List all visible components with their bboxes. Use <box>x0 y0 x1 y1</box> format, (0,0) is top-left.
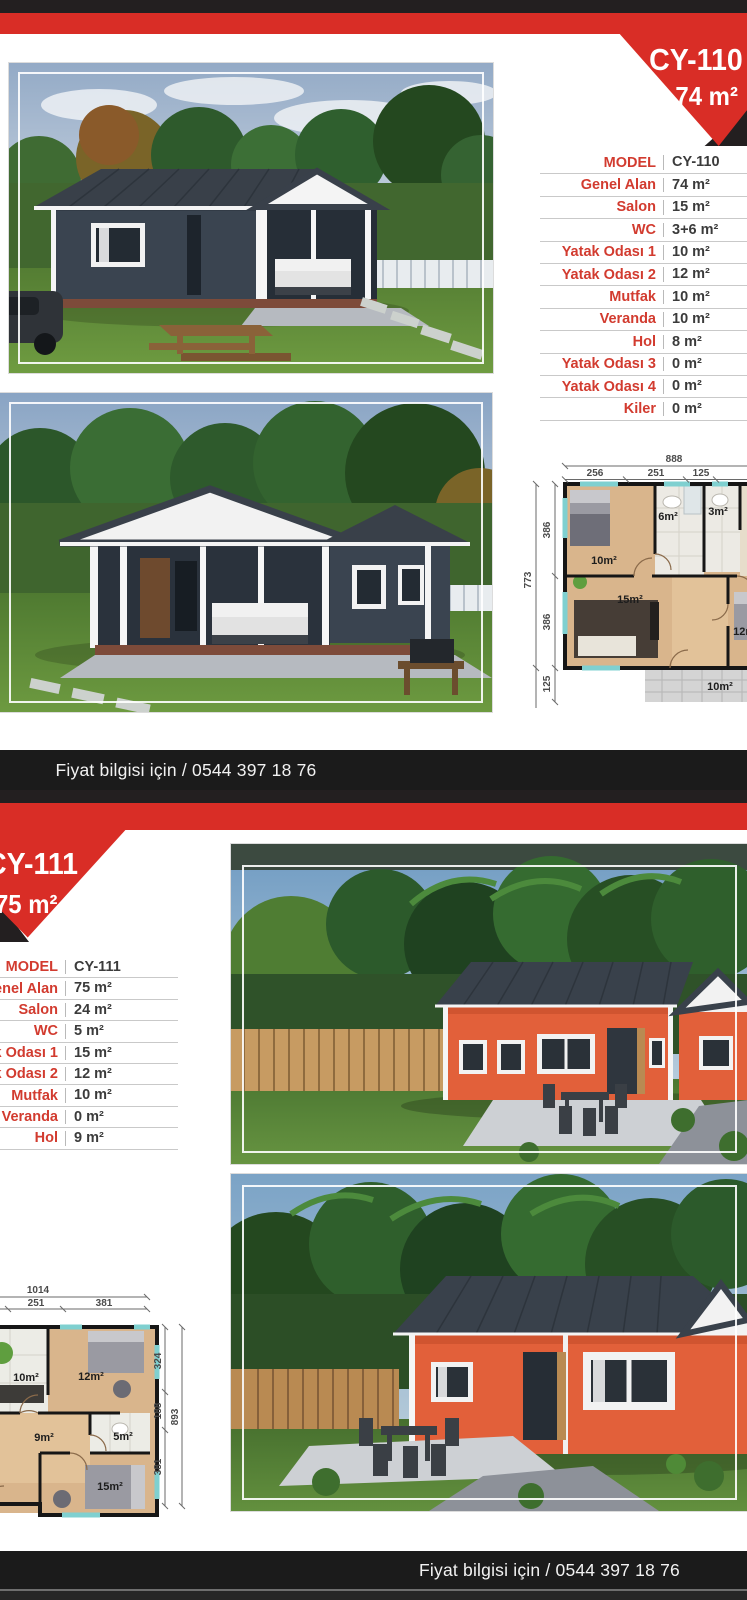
spec-value: 24 m² <box>65 1003 178 1018</box>
section1-red-band <box>0 13 747 34</box>
spec-label: Veranda <box>0 1107 65 1127</box>
svg-text:1014: 1014 <box>27 1285 50 1296</box>
spec-label: WC <box>540 219 663 240</box>
spec-row: Yatak Odası 40 m² <box>540 376 747 398</box>
downspout <box>187 215 201 295</box>
top-dark-strip <box>0 0 747 13</box>
svg-text:381: 381 <box>153 1458 164 1475</box>
spec-label: Yatak Odası 1 <box>540 242 663 263</box>
spec-value: CY-110 <box>663 155 747 170</box>
door <box>523 1352 566 1440</box>
wood-fence <box>231 1029 446 1091</box>
spec-label: Veranda <box>540 309 663 330</box>
spec-value: 0 m² <box>663 402 747 417</box>
spec-row: Hol9 m² <box>0 1128 178 1149</box>
spec-row: MODELCY-111 <box>0 957 178 978</box>
svg-text:12m²: 12m² <box>78 1371 104 1383</box>
spec-label: MODEL <box>540 152 663 173</box>
svg-text:188: 188 <box>153 1402 164 1419</box>
model-code: CY-110 <box>649 42 743 78</box>
svg-text:9m²: 9m² <box>34 1432 54 1444</box>
spec-row: Veranda10 m² <box>540 309 747 331</box>
spec-label: Hol <box>0 1128 65 1148</box>
svg-text:386: 386 <box>542 613 553 630</box>
spec-label: Mutfak <box>0 1085 65 1105</box>
svg-text:5m²: 5m² <box>113 1431 133 1443</box>
svg-text:6m²: 6m² <box>658 511 678 523</box>
price-info-text: Fiyat bilgisi için / 0544 397 18 76 <box>352 1551 747 1589</box>
brick-base <box>51 299 377 308</box>
spec-row: Yatak Odası 110 m² <box>540 242 747 264</box>
spec-row: Salon15 m² <box>540 197 747 219</box>
spec-row: Yatak Odası 212 m² <box>0 1064 178 1085</box>
section2-red-band <box>0 803 747 830</box>
roof <box>435 962 693 1006</box>
window <box>459 1040 487 1074</box>
price-bar-section1: Fiyat bilgisi için / 0544 397 18 76 <box>0 750 747 790</box>
spec-value: 9 m² <box>65 1131 178 1146</box>
spec-table-cy111: MODELCY-111Genel Alan75 m²Salon24 m²WC5 … <box>0 957 178 1150</box>
window <box>91 223 145 267</box>
spec-label: Hol <box>540 331 663 352</box>
svg-text:888: 888 <box>666 454 683 465</box>
window <box>398 565 424 605</box>
spec-value: 0 m² <box>663 379 747 394</box>
svg-text:10m²: 10m² <box>13 1372 39 1384</box>
spec-row: Genel Alan75 m² <box>0 978 178 999</box>
spec-value: 10 m² <box>65 1088 178 1103</box>
section1-model-ribbon: CY-110 74 m² <box>545 34 747 146</box>
spec-value: 12 m² <box>663 267 747 282</box>
spec-row: Mutfak10 m² <box>540 286 747 308</box>
spec-row: Yatak Odası 115 m² <box>0 1043 178 1064</box>
photo-house-cy110-front <box>0 392 493 713</box>
spec-value: 10 m² <box>663 312 747 327</box>
house-render-illustration <box>231 1174 747 1511</box>
spec-row: Yatak Odası 30 m² <box>540 354 747 376</box>
spec-value: 5 m² <box>65 1024 178 1039</box>
spec-value: 75 m² <box>65 981 178 996</box>
model-area: 74 m² <box>676 81 738 112</box>
floor-plan-cy111: 1014 251 381 324 188 381 893 10m² 12m² 5… <box>0 1283 195 1548</box>
spec-table-cy110: MODELCY-110Genel Alan74 m²Salon15 m²WC3+… <box>540 152 747 421</box>
photo-house-cy110-side <box>8 62 494 374</box>
window <box>537 1034 595 1074</box>
spec-label: Kiler <box>540 398 663 419</box>
spec-row: Salon24 m² <box>0 1000 178 1021</box>
spec-row: Mutfak10 m² <box>0 1085 178 1106</box>
spec-value: 74 m² <box>663 178 747 193</box>
spec-label: MODEL <box>0 957 65 977</box>
window <box>352 565 386 609</box>
spec-value: 15 m² <box>663 200 747 215</box>
price-info-text: Fiyat bilgisi için / 0544 397 18 76 <box>0 750 372 790</box>
spec-label: Yatak Odası 2 <box>540 264 663 285</box>
bottom-dark-strip <box>0 1589 747 1600</box>
svg-text:12m²: 12m² <box>733 626 747 638</box>
sofa <box>212 603 308 644</box>
spec-row: Veranda0 m² <box>0 1107 178 1128</box>
spec-value: 3+6 m² <box>663 223 747 238</box>
spec-value: CY-111 <box>65 960 178 975</box>
window <box>699 1036 733 1070</box>
spec-label: WC <box>0 1021 65 1041</box>
price-bar-section2: Fiyat bilgisi için / 0544 397 18 76 <box>0 1551 747 1589</box>
brick-base <box>95 645 445 655</box>
spec-value: 0 m² <box>663 357 747 372</box>
svg-text:893: 893 <box>170 1408 181 1425</box>
spec-label: Salon <box>0 1000 65 1020</box>
model-area: 75 m² <box>0 889 57 920</box>
svg-text:10m²: 10m² <box>591 555 617 567</box>
window <box>649 1038 665 1068</box>
spec-value: 0 m² <box>65 1110 178 1125</box>
svg-text:15m²: 15m² <box>617 594 643 606</box>
house-render-illustration <box>231 844 747 1164</box>
spec-value: 12 m² <box>65 1067 178 1082</box>
svg-text:125: 125 <box>693 468 710 479</box>
svg-text:773: 773 <box>523 571 534 588</box>
svg-text:3m²: 3m² <box>708 506 728 518</box>
svg-text:251: 251 <box>28 1298 45 1309</box>
section2-model-ribbon: CY-111 75 m² <box>0 830 132 942</box>
photo-house-cy111-close <box>230 1173 747 1512</box>
spec-label: Yatak Odası 4 <box>540 376 663 397</box>
svg-text:386: 386 <box>542 521 553 538</box>
spec-value: 8 m² <box>663 335 747 350</box>
spec-label: Yatak Odası 3 <box>540 354 663 375</box>
svg-text:15m²: 15m² <box>97 1481 123 1493</box>
spec-row: Genel Alan74 m² <box>540 174 747 196</box>
svg-text:125: 125 <box>542 675 553 692</box>
spec-value: 15 m² <box>65 1046 178 1061</box>
house-render-illustration <box>0 393 492 712</box>
svg-text:381: 381 <box>96 1298 113 1309</box>
spec-label: Yatak Odası 2 <box>0 1064 65 1084</box>
wood-fence <box>231 1369 399 1429</box>
door <box>140 558 170 638</box>
spec-label: Yatak Odası 1 <box>0 1043 65 1063</box>
spec-row: WC3+6 m² <box>540 219 747 241</box>
svg-text:324: 324 <box>153 1352 164 1369</box>
spec-row: MODELCY-110 <box>540 152 747 174</box>
svg-text:10m²: 10m² <box>707 681 733 693</box>
spec-label: Genel Alan <box>540 174 663 195</box>
spec-label: Genel Alan <box>0 978 65 998</box>
brochure-page: CY-110 74 m² <box>0 0 747 1600</box>
floor-plan-cy110: 888 256 251 125 773 386 386 125 10m² 6m²… <box>522 430 747 712</box>
spec-row: Hol8 m² <box>540 331 747 353</box>
spec-value: 10 m² <box>663 290 747 305</box>
window <box>583 1352 675 1410</box>
spec-row: WC5 m² <box>0 1021 178 1042</box>
house-render-illustration <box>9 63 493 373</box>
photo-house-cy111-wide <box>230 843 747 1165</box>
svg-text:251: 251 <box>648 468 665 479</box>
spec-label: Mutfak <box>540 286 663 307</box>
spec-label: Salon <box>540 197 663 218</box>
svg-text:256: 256 <box>587 468 604 479</box>
window <box>497 1040 525 1074</box>
section2-dark-strip <box>0 790 747 803</box>
spec-row: Yatak Odası 212 m² <box>540 264 747 286</box>
model-code: CY-111 <box>0 846 78 882</box>
spec-value: 10 m² <box>663 245 747 260</box>
spec-row: Kiler0 m² <box>540 398 747 420</box>
window <box>431 1362 473 1402</box>
